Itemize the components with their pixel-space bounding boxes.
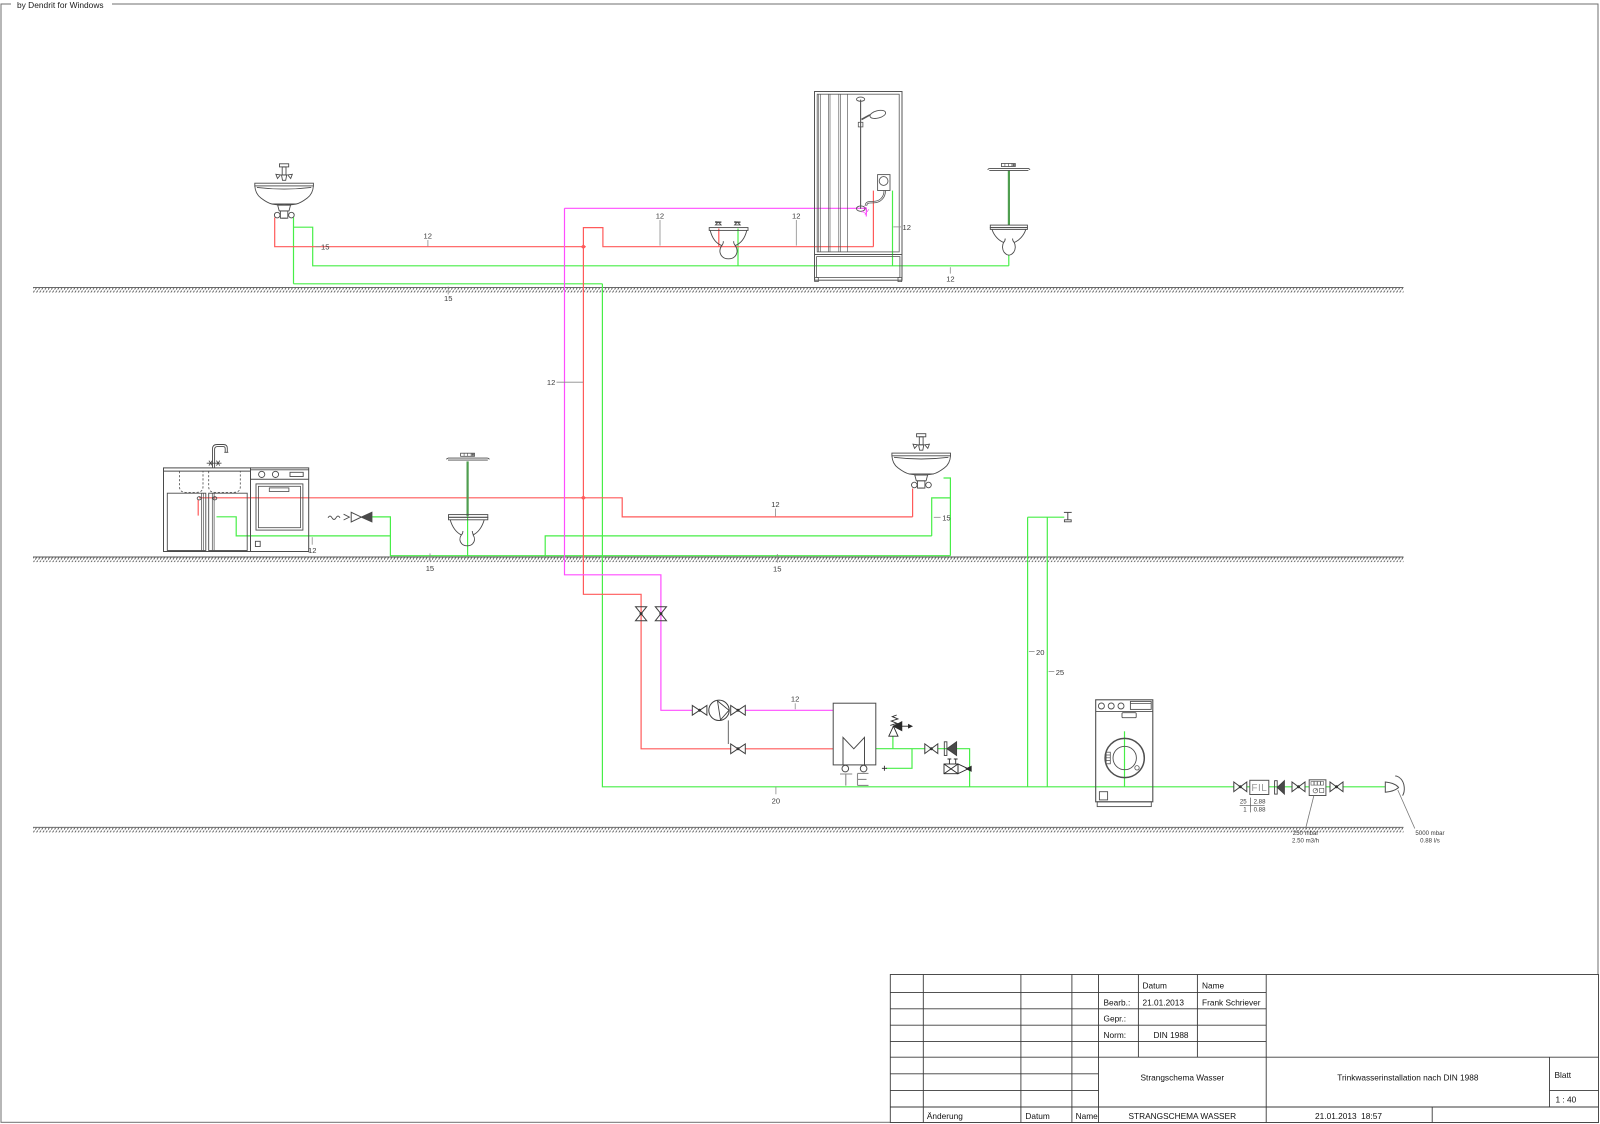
svg-text:12: 12 [308,546,316,555]
svg-text:Frank Schriever: Frank Schriever [1202,997,1261,1007]
svg-text:15: 15 [426,564,434,573]
svg-text:2.88: 2.88 [1254,799,1266,806]
svg-text:15: 15 [321,243,329,252]
svg-text:25: 25 [1056,668,1064,677]
svg-text:5000 mbar: 5000 mbar [1415,830,1444,837]
svg-text:12: 12 [903,223,911,232]
svg-text:20: 20 [1036,648,1044,657]
svg-text:Blatt: Blatt [1555,1070,1572,1080]
svg-text:0.88 l/s: 0.88 l/s [1420,838,1440,845]
svg-text:Norm:: Norm: [1104,1030,1127,1040]
svg-text:15: 15 [773,564,781,573]
svg-text:12: 12 [771,500,779,509]
svg-text:21.01.2013 18:57: 21.01.2013 18:57 [1315,1111,1382,1121]
svg-text:12: 12 [792,211,800,220]
svg-text:Strangschema Wasser: Strangschema Wasser [1140,1072,1224,1082]
svg-text:by Dendrit for Windows: by Dendrit for Windows [17,0,104,10]
svg-text:12: 12 [424,232,432,241]
svg-text:12: 12 [547,378,555,387]
svg-text:STRANGSCHEMA WASSER: STRANGSCHEMA WASSER [1129,1111,1237,1121]
svg-text:Gepr.:: Gepr.: [1104,1014,1127,1024]
svg-text:Änderung: Änderung [927,1111,963,1121]
svg-text:Datum: Datum [1025,1111,1050,1121]
svg-text:Name: Name [1202,981,1225,991]
svg-text:12: 12 [791,694,799,703]
svg-text:Datum: Datum [1143,981,1168,991]
svg-text:15: 15 [942,513,950,522]
svg-text:250 mbar: 250 mbar [1293,830,1319,837]
svg-text:Name: Name [1076,1111,1099,1121]
svg-text:12: 12 [656,211,664,220]
svg-text:DIN 1988: DIN 1988 [1154,1030,1189,1040]
svg-text:FIL: FIL [1251,783,1267,794]
svg-text:Trinkwasserinstallation nach D: Trinkwasserinstallation nach DIN 1988 [1337,1072,1479,1082]
svg-text:2.50 m3/h: 2.50 m3/h [1292,838,1319,845]
svg-text:25: 25 [1240,799,1247,806]
svg-text:1 : 40: 1 : 40 [1556,1095,1577,1105]
svg-text:21.01.2013: 21.01.2013 [1143,997,1185,1007]
svg-text:0.88: 0.88 [1254,807,1266,814]
svg-text:20: 20 [772,796,780,805]
svg-text:15: 15 [444,294,452,303]
svg-text:Bearb.:: Bearb.: [1104,997,1131,1007]
svg-text:12: 12 [946,274,954,283]
